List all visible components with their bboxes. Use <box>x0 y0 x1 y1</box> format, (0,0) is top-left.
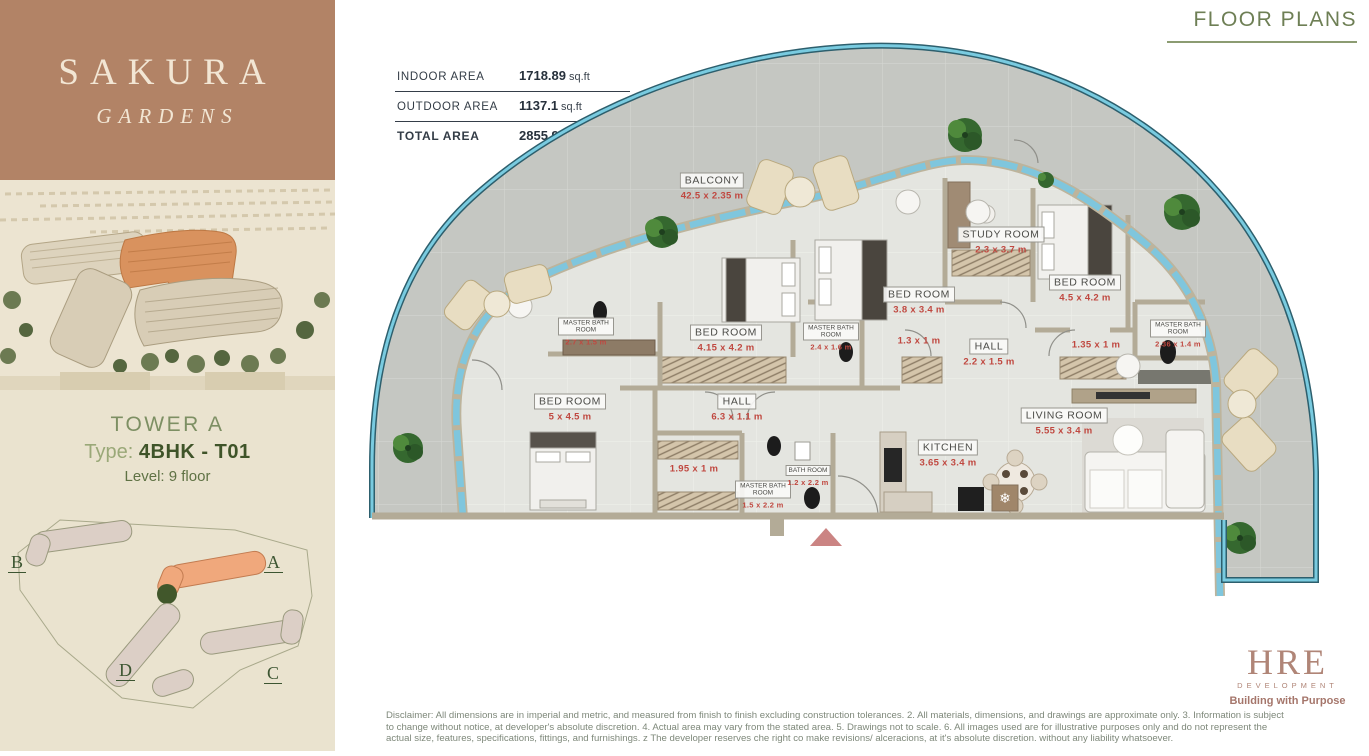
room-dims: 6.3 x 1.1 m <box>711 412 762 423</box>
room-dims: 1.5 x 2.2 m <box>735 501 791 510</box>
page: { "header": { "title": "FLOOR PLANS" }, … <box>0 0 1369 751</box>
developer-logo-name: HRE <box>1220 645 1355 679</box>
room-name: HALL <box>718 394 757 410</box>
room-name: BED ROOM <box>690 325 762 341</box>
room-label-hall-2: HALL 6.3 x 1.1 m <box>711 392 762 423</box>
room-label-living: LIVING ROOM 5.55 x 3.4 m <box>1021 406 1108 437</box>
room-dims: 1.3 x 1 m <box>898 336 941 347</box>
room-dims: 2.36 x 1.4 m <box>1150 340 1206 349</box>
room-name: BED ROOM <box>883 287 955 303</box>
room-name: BED ROOM <box>1049 275 1121 291</box>
sidebar: SAKURA GARDENS <box>0 0 335 751</box>
room-dims: 1.35 x 1 m <box>1072 340 1120 351</box>
room-label-master-bath-2: MASTER BATH ROOM 2.4 x 1.6 m <box>803 323 859 352</box>
disclaimer-text: Disclaimer: All dimensions are in imperi… <box>386 710 1288 745</box>
unit-type-value: 4BHK - T01 <box>139 441 251 463</box>
room-label-bedroom-4: BED ROOM 5 x 4.5 m <box>534 392 606 423</box>
room-name: MASTER BATH ROOM <box>803 323 859 341</box>
unit-type-label: Type: <box>84 441 133 463</box>
room-name: BATH ROOM <box>786 465 831 476</box>
site-building-c <box>199 609 304 656</box>
entry-stub <box>770 516 784 536</box>
room-label-master-bath-3: MASTER BATH ROOM 2.36 x 1.4 m <box>1150 320 1206 349</box>
toilet <box>767 436 781 456</box>
room-dims: 5.55 x 3.4 m <box>1021 426 1108 437</box>
room-label-hall-1: HALL 2.2 x 1.5 m <box>963 337 1014 368</box>
site-map-image <box>0 508 335 751</box>
unit-level: Level: 9 floor <box>125 468 211 485</box>
bed-38x34 <box>815 240 887 320</box>
tower-name: TOWER A <box>111 413 225 437</box>
bed-415x42 <box>722 258 800 322</box>
unit-level-label: Level: <box>125 468 165 485</box>
bed-5x45 <box>530 432 596 510</box>
room-label-corridor-2: 1.35 x 1 m <box>1072 338 1120 351</box>
coffee-table <box>1113 425 1143 455</box>
site-building-a <box>155 550 267 604</box>
development-render <box>0 180 335 390</box>
room-label-kitchen: KITCHEN 3.65 x 3.4 m <box>918 438 978 469</box>
site-map: B A D C <box>0 508 335 751</box>
unit-info: TOWER A Type: 4BHK - T01 Level: 9 floor <box>0 390 335 508</box>
site-label-a: A <box>264 552 283 573</box>
vanity-counter-2 <box>1138 370 1216 384</box>
brand-title: SAKURA <box>58 51 276 94</box>
room-dims: 2.3 x 3.7 m <box>958 245 1045 256</box>
entry-arrow <box>810 528 842 546</box>
oven <box>958 487 984 511</box>
developer-tagline: Building with Purpose <box>1220 695 1355 707</box>
room-dims: 2.4 x 1.6 m <box>803 343 859 352</box>
room-label-bedroom-1: BED ROOM 4.5 x 4.2 m <box>1049 273 1121 304</box>
room-label-master-bath-1: MASTER BATH ROOM 2.7 x 1.5 m <box>558 318 614 347</box>
room-name: BALCONY <box>680 173 744 189</box>
developer-logo-sub: DEVELOPMENT <box>1220 681 1355 690</box>
room-name: STUDY ROOM <box>958 227 1045 243</box>
room-name: LIVING ROOM <box>1021 408 1108 424</box>
brand-block: SAKURA GARDENS <box>0 0 335 180</box>
site-building-d <box>102 599 196 699</box>
room-dims: 4.5 x 4.2 m <box>1049 293 1121 304</box>
room-dims: 5 x 4.5 m <box>534 412 606 423</box>
site-label-c: C <box>264 663 282 684</box>
room-label-study: STUDY ROOM 2.3 x 3.7 m <box>958 225 1045 256</box>
room-name: BED ROOM <box>534 394 606 410</box>
unit-level-value: 9 floor <box>169 468 211 485</box>
room-dims: 4.15 x 4.2 m <box>690 343 762 354</box>
toilet <box>804 487 820 509</box>
site-building-b <box>24 519 134 568</box>
cooktop <box>884 448 902 482</box>
snowflake-icon: ❄ <box>999 490 1011 506</box>
room-dims: 2.2 x 1.5 m <box>963 357 1014 368</box>
room-name: MASTER BATH ROOM <box>735 481 791 499</box>
chaise <box>1166 430 1204 508</box>
room-name: HALL <box>970 339 1009 355</box>
room-dims: 3.65 x 3.4 m <box>918 458 978 469</box>
site-building-a-entry-marker <box>157 584 177 604</box>
developer-logo: HRE DEVELOPMENT Building with Purpose <box>1220 645 1355 707</box>
bed-45x42 <box>1038 205 1112 279</box>
room-label-bedroom-2: BED ROOM 3.8 x 3.4 m <box>883 285 955 316</box>
site-label-b: B <box>8 552 26 573</box>
room-label-master-bath-4: MASTER BATH ROOM 1.5 x 2.2 m <box>735 481 791 510</box>
development-render-image <box>0 180 335 390</box>
render-podium <box>60 372 150 390</box>
room-dims: 1.2 x 2.2 m <box>786 478 831 487</box>
render-podium-2 <box>205 372 285 390</box>
room-name: KITCHEN <box>918 440 978 456</box>
room-label-bath: BATH ROOM 1.2 x 2.2 m <box>786 459 831 487</box>
room-label-corridor-1: 1.3 x 1 m <box>898 334 941 347</box>
room-dims: 2.7 x 1.5 m <box>558 338 614 347</box>
site-label-d: D <box>116 660 135 681</box>
brand-subtitle: GARDENS <box>96 104 238 129</box>
room-name: MASTER BATH ROOM <box>558 318 614 336</box>
washbasin <box>795 442 810 460</box>
room-label-balcony: BALCONY 42.5 x 2.35 m <box>680 171 744 202</box>
room-label-corridor-3: 1.95 x 1 m <box>670 462 718 475</box>
room-dims: 1.95 x 1 m <box>670 464 718 475</box>
room-dims: 42.5 x 2.35 m <box>680 191 744 202</box>
unit-type: Type: 4BHK - T01 <box>84 441 250 464</box>
tv <box>1096 392 1150 399</box>
room-name: MASTER BATH ROOM <box>1150 320 1206 338</box>
room-label-bedroom-3: BED ROOM 4.15 x 4.2 m <box>690 323 762 354</box>
room-dims: 3.8 x 3.4 m <box>883 305 955 316</box>
